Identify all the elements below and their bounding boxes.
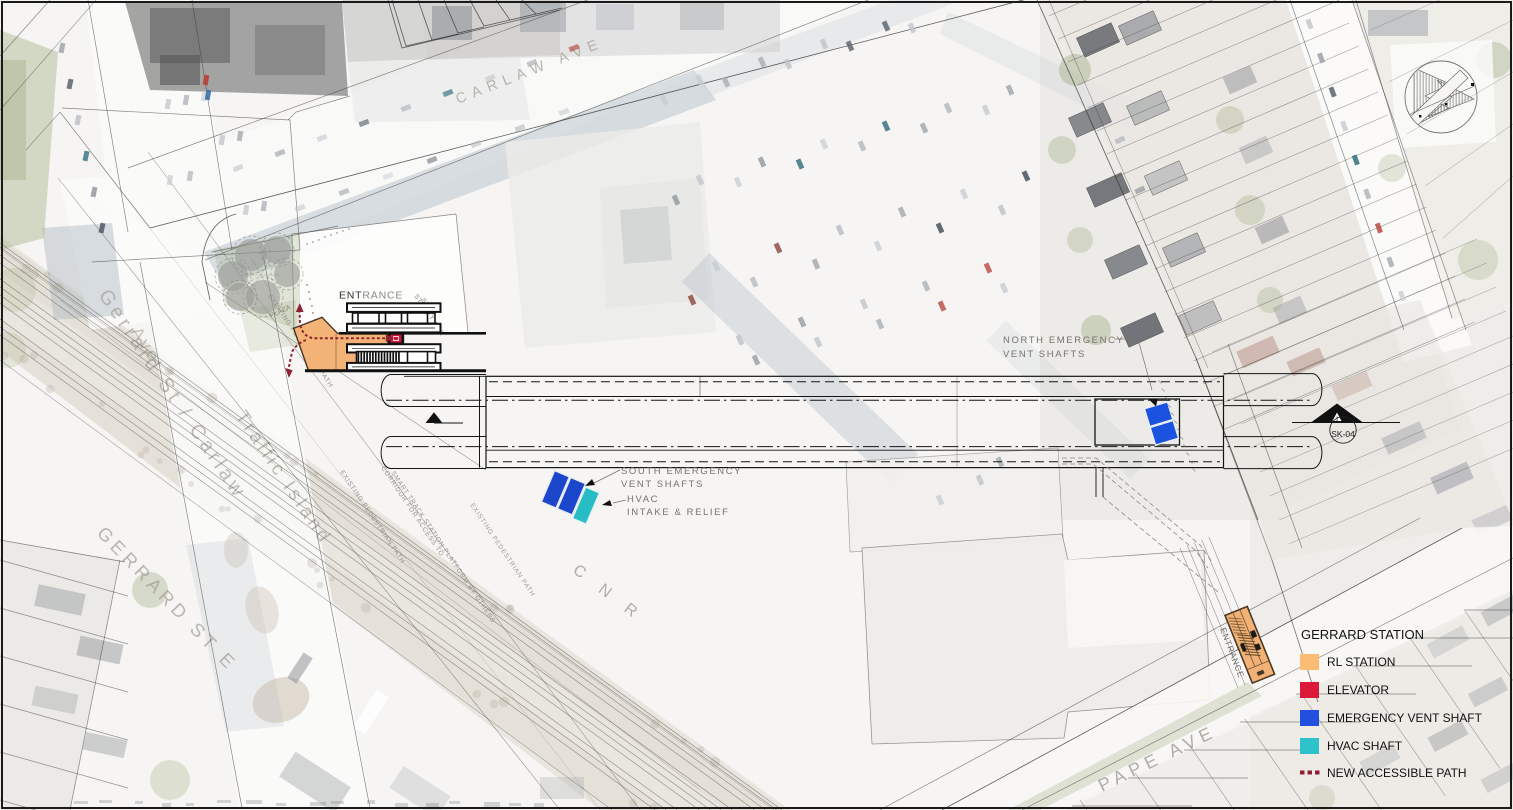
svg-text:VENT SHAFTS: VENT SHAFTS [621,479,704,490]
svg-text:NEW ACCESSIBLE PATH: NEW ACCESSIBLE PATH [1327,766,1467,780]
svg-text:VENT SHAFTS: VENT SHAFTS [1003,349,1086,360]
svg-text:ELEVATOR: ELEVATOR [1327,683,1389,697]
svg-text:ENTRANCE: ENTRANCE [339,290,403,302]
svg-text:EMERGENCY VENT SHAFT: EMERGENCY VENT SHAFT [1327,711,1483,725]
svg-text:NORTH EMERGENCY: NORTH EMERGENCY [1003,335,1124,346]
svg-text:INTAKE & RELIEF: INTAKE & RELIEF [627,507,729,518]
svg-text:RL STATION: RL STATION [1327,655,1395,669]
svg-text:SK-04: SK-04 [1331,429,1355,439]
svg-text:HVAC: HVAC [627,494,659,505]
svg-text:SOUTH EMERGENCY: SOUTH EMERGENCY [621,466,742,477]
svg-text:HVAC SHAFT: HVAC SHAFT [1327,739,1403,753]
svg-text:GERRARD STATION: GERRARD STATION [1301,627,1424,642]
